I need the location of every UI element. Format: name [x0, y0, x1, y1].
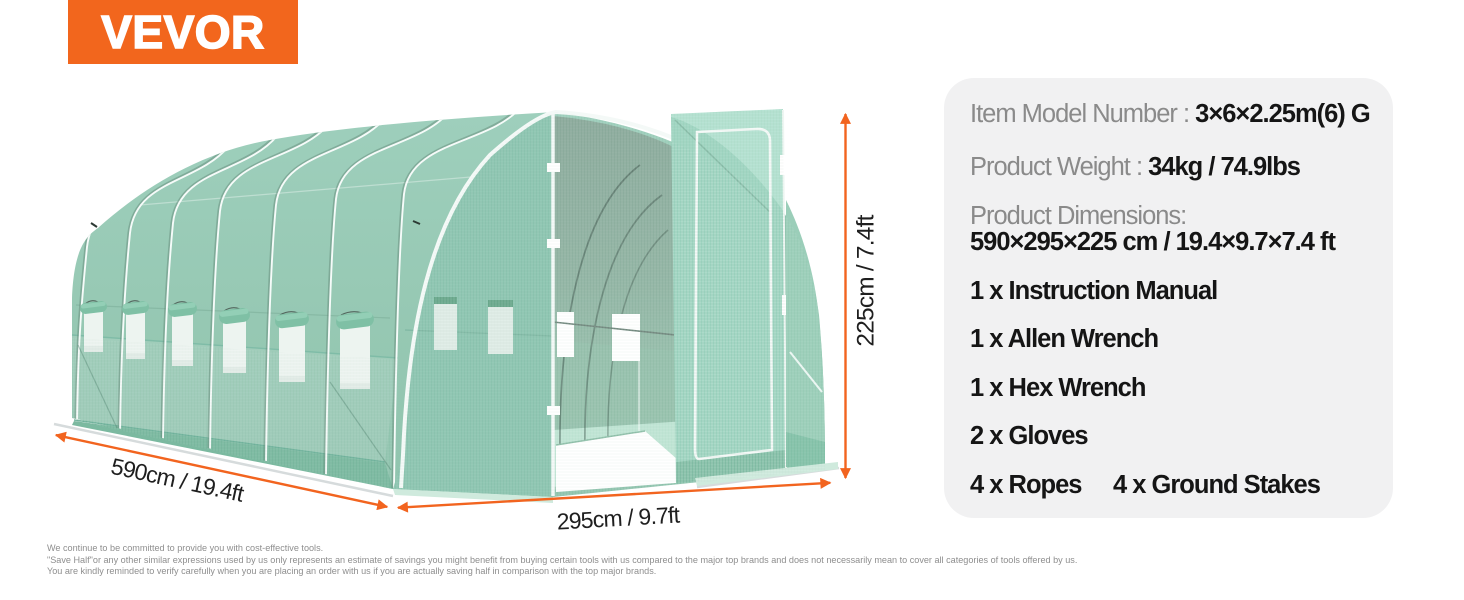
svg-text:225cm / 7.4ft: 225cm / 7.4ft	[853, 214, 880, 346]
svg-text:295cm / 9.7ft: 295cm / 9.7ft	[556, 501, 681, 534]
